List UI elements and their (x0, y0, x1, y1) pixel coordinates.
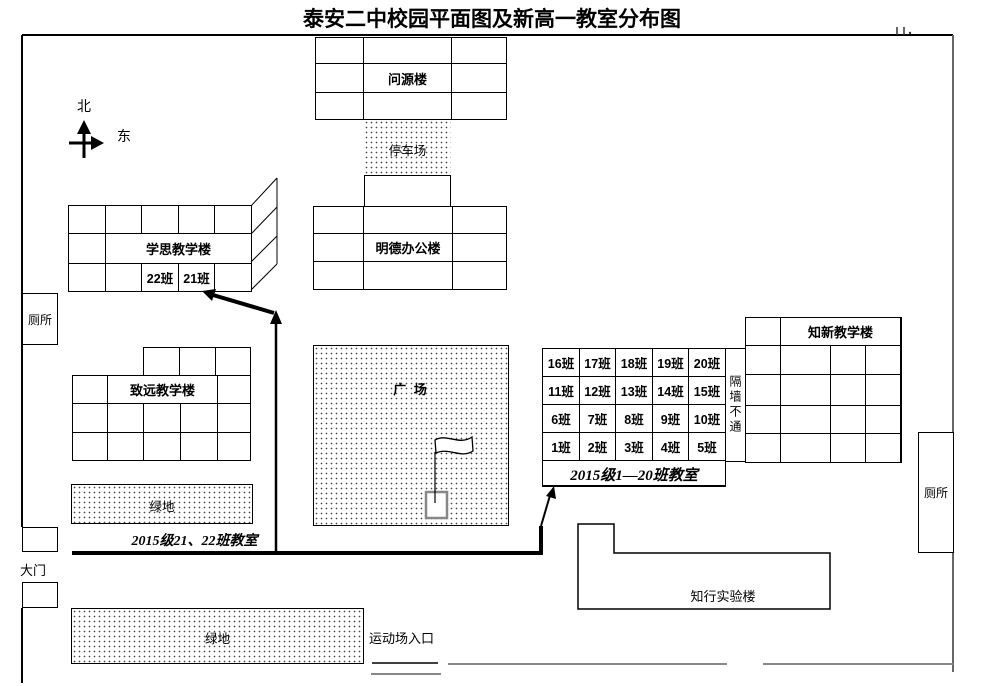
xuesi-building: 学思教学楼 22班 21班 (68, 205, 252, 292)
grid-cell (108, 433, 143, 460)
grid-cell (144, 348, 179, 375)
grid-cell (866, 434, 900, 462)
grid-cell (215, 264, 251, 291)
grid-cell (73, 433, 107, 460)
plaza: 广 场 (313, 345, 509, 526)
grid-cell (364, 207, 452, 233)
toilet-left: 厕所 (22, 293, 58, 345)
classroom-cell: 20班 (689, 349, 725, 376)
grid-cell (364, 93, 451, 119)
grid-cell (142, 206, 178, 233)
toilet-left-label: 厕所 (28, 311, 52, 328)
xuesi-label: 学思教学楼 (106, 234, 251, 263)
mingde-building: 明德办公楼 (313, 206, 507, 290)
classroom-cell: 18班 (616, 349, 652, 376)
mingde-annex (364, 175, 451, 207)
classroom-cell: 16班 (543, 349, 579, 376)
classroom-caption-box: 2015级1—20班教室 (543, 464, 725, 485)
grid-cell (181, 433, 217, 460)
arrow-to-classes-1-20 (541, 486, 556, 555)
zhixin-label: 知新教学楼 (781, 318, 900, 345)
toilet-right: 厕所 (918, 432, 954, 553)
classroom-cell: 6班 (543, 405, 579, 432)
grid-cell (144, 433, 180, 460)
grid-cell (106, 206, 141, 233)
grid-cell (314, 207, 363, 233)
compass-icon (69, 120, 104, 158)
xuesi-3d-wing (251, 178, 277, 290)
campus-map: 泰安二中校园平面图及新高一教室分布图 北 东 问源楼 停车场 明德办公楼 学思教… (0, 0, 984, 686)
grid-cell (108, 404, 143, 432)
grid-cell (181, 404, 217, 432)
gate-label: 大门 (20, 560, 46, 579)
grid-cell (781, 346, 830, 374)
page-title: 泰安二中校园平面图及新高一教室分布图 (0, 3, 984, 33)
wenyuan-label: 问源楼 (364, 64, 451, 92)
grid-cell (831, 375, 865, 405)
grid-cell (746, 318, 780, 345)
grid-cell (179, 206, 214, 233)
grid-cell (69, 234, 105, 263)
grid-cell (746, 375, 780, 405)
zhiyuan-building: 致远教学楼 (72, 375, 251, 461)
grid-cell (218, 376, 250, 403)
grid-cell (746, 434, 780, 462)
classroom-cell: 14班 (653, 377, 688, 404)
grid-cell (316, 38, 363, 63)
caption-21-22: 2015级21、22班教室 (112, 530, 277, 550)
classroom-cell: 4班 (653, 433, 688, 460)
zhiyuan-label: 致远教学楼 (108, 376, 217, 403)
grid-cell (866, 406, 900, 433)
partition-label: 隔墙不通 (727, 375, 744, 435)
grid-cell (831, 434, 865, 462)
compass-east-label: 东 (117, 126, 131, 146)
grid-cell (452, 38, 506, 63)
classroom-cell: 8班 (616, 405, 652, 432)
grid-cell (106, 264, 141, 291)
grid-cell (69, 206, 105, 233)
zhiyuan-annex-row (143, 347, 251, 376)
zhixing-label: 知行实验楼 (623, 586, 823, 605)
grid-cell (216, 348, 250, 375)
grid-cell (831, 406, 865, 433)
grid-cell (144, 404, 180, 432)
grid-cell (73, 376, 107, 403)
classroom-cell: 12班 (580, 377, 615, 404)
grid-cell (452, 93, 506, 119)
sports-entrance-label: 运动场入口 (369, 628, 434, 647)
mingde-label: 明德办公楼 (364, 234, 452, 261)
parking-label: 停车场 (364, 140, 451, 159)
grid-cell (364, 262, 452, 289)
classroom-cell: 3班 (616, 433, 652, 460)
classroom-cell: 10班 (689, 405, 725, 432)
class-21-cell: 21班 (179, 264, 214, 291)
grid-cell (452, 64, 506, 92)
plaza-label: 广 场 (314, 379, 508, 398)
grid-cell (781, 406, 830, 433)
classroom-cell: 5班 (689, 433, 725, 460)
grid-cell (314, 234, 363, 261)
classroom-cell: 15班 (689, 377, 725, 404)
grid-cell (73, 404, 107, 432)
classroom-cell: 11班 (543, 377, 579, 404)
grid-cell (453, 234, 506, 261)
grid-cell (180, 348, 215, 375)
classroom-cell: 9班 (653, 405, 688, 432)
gate-post-upper (22, 527, 58, 552)
classroom-cell: 2班 (580, 433, 615, 460)
grid-cell (781, 434, 830, 462)
grid-cell (746, 346, 780, 374)
class-22-cell: 22班 (142, 264, 178, 291)
grid-cell (316, 64, 363, 92)
partition-wall-note: 隔墙不通 (725, 348, 746, 462)
classroom-cell: 13班 (616, 377, 652, 404)
compass-north-label: 北 (77, 96, 91, 116)
grid-cell (314, 262, 363, 289)
classroom-cell: 7班 (580, 405, 615, 432)
grid-cell (218, 433, 250, 460)
classroom-cell: 17班 (580, 349, 615, 376)
wenyuan-building: 问源楼 (315, 37, 507, 120)
grid-cell (831, 346, 865, 374)
classroom-cell: 1班 (543, 433, 579, 460)
grid-cell (69, 264, 105, 291)
grid-cell (781, 375, 830, 405)
grid-cell (364, 38, 451, 63)
green-bottom-label: 绿地 (71, 628, 364, 647)
grid-cell (866, 346, 900, 374)
grid-cell (453, 207, 506, 233)
grid-cell (866, 375, 900, 405)
zhixin-building: 知新教学楼 (745, 317, 902, 463)
grid-cell (215, 206, 251, 233)
classroom-cell: 19班 (653, 349, 688, 376)
grid-cell (218, 404, 250, 432)
grid-cell (453, 262, 506, 289)
grid-cell (316, 93, 363, 119)
gate-post-lower (22, 582, 58, 608)
green-top-label: 绿地 (71, 496, 253, 515)
grid-cell (746, 406, 780, 433)
toilet-right-label: 厕所 (924, 484, 948, 501)
